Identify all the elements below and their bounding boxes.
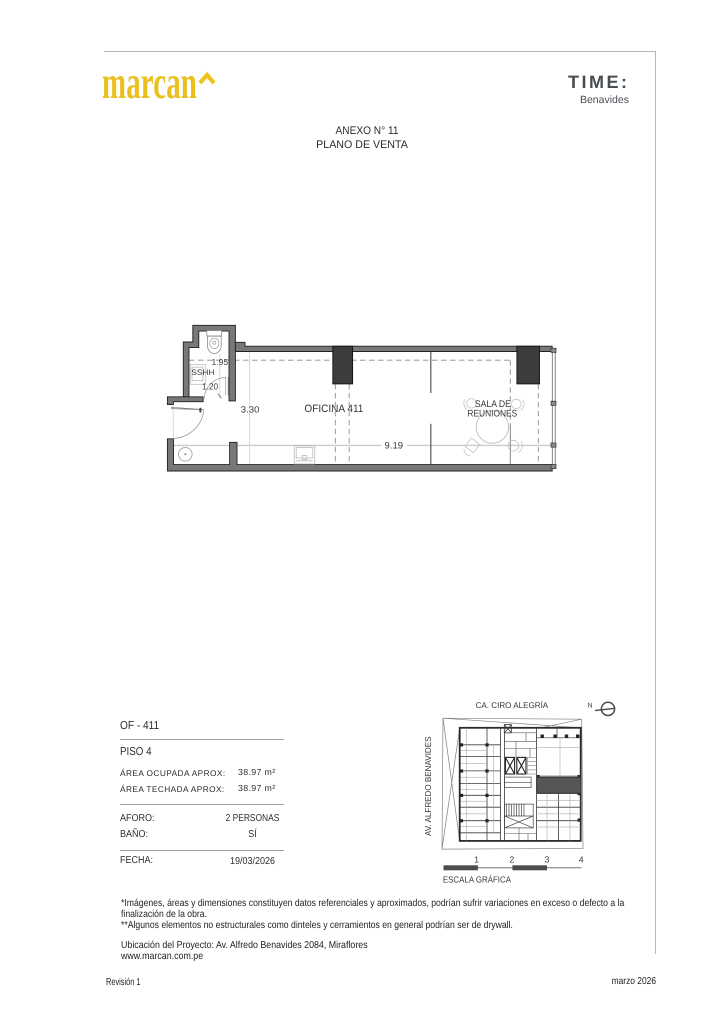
svg-text:1.20: 1.20	[202, 381, 218, 391]
svg-text:2: 2	[509, 854, 514, 864]
svg-text:N: N	[587, 703, 592, 710]
svg-text:4: 4	[579, 854, 584, 864]
svg-text:REUNIONES: REUNIONES	[467, 409, 517, 420]
svg-text:9.19: 9.19	[385, 440, 404, 450]
svg-text:CA. CIRO ALEGRÍA: CA. CIRO ALEGRÍA	[476, 700, 549, 710]
svg-text:1: 1	[474, 854, 479, 864]
svg-text:ESCALA GRÁFICA: ESCALA GRÁFICA	[443, 875, 511, 885]
svg-text:1.95: 1.95	[212, 357, 229, 367]
svg-text:OFICINA 411: OFICINA 411	[304, 403, 363, 415]
svg-text:3: 3	[544, 854, 549, 864]
svg-text:AV. ALFREDO BENAVIDES: AV. ALFREDO BENAVIDES	[423, 736, 433, 836]
svg-text:3.30: 3.30	[241, 404, 260, 414]
svg-text:SSHH: SSHH	[191, 368, 215, 377]
